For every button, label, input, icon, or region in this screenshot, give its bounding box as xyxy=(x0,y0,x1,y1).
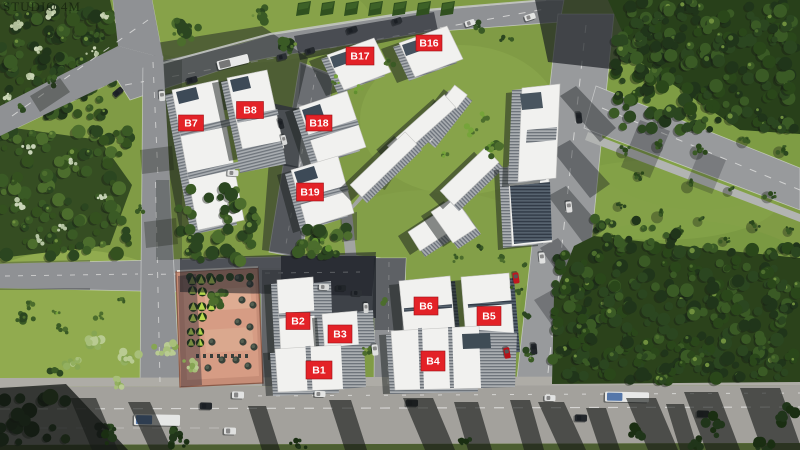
svg-text:B17: B17 xyxy=(350,51,369,63)
svg-text:B2: B2 xyxy=(291,316,305,328)
svg-text:B6: B6 xyxy=(419,301,433,313)
svg-text:B5: B5 xyxy=(482,311,496,323)
svg-text:B19: B19 xyxy=(300,187,319,199)
svg-text:B8: B8 xyxy=(243,105,257,117)
svg-text:B1: B1 xyxy=(312,365,326,377)
svg-text:B3: B3 xyxy=(333,329,347,341)
svg-text:B16: B16 xyxy=(419,38,438,50)
svg-text:B7: B7 xyxy=(184,118,198,130)
svg-text:B4: B4 xyxy=(426,356,440,368)
svg-text:STUDIO 4M: STUDIO 4M xyxy=(3,0,81,14)
svg-text:B18: B18 xyxy=(309,118,328,130)
